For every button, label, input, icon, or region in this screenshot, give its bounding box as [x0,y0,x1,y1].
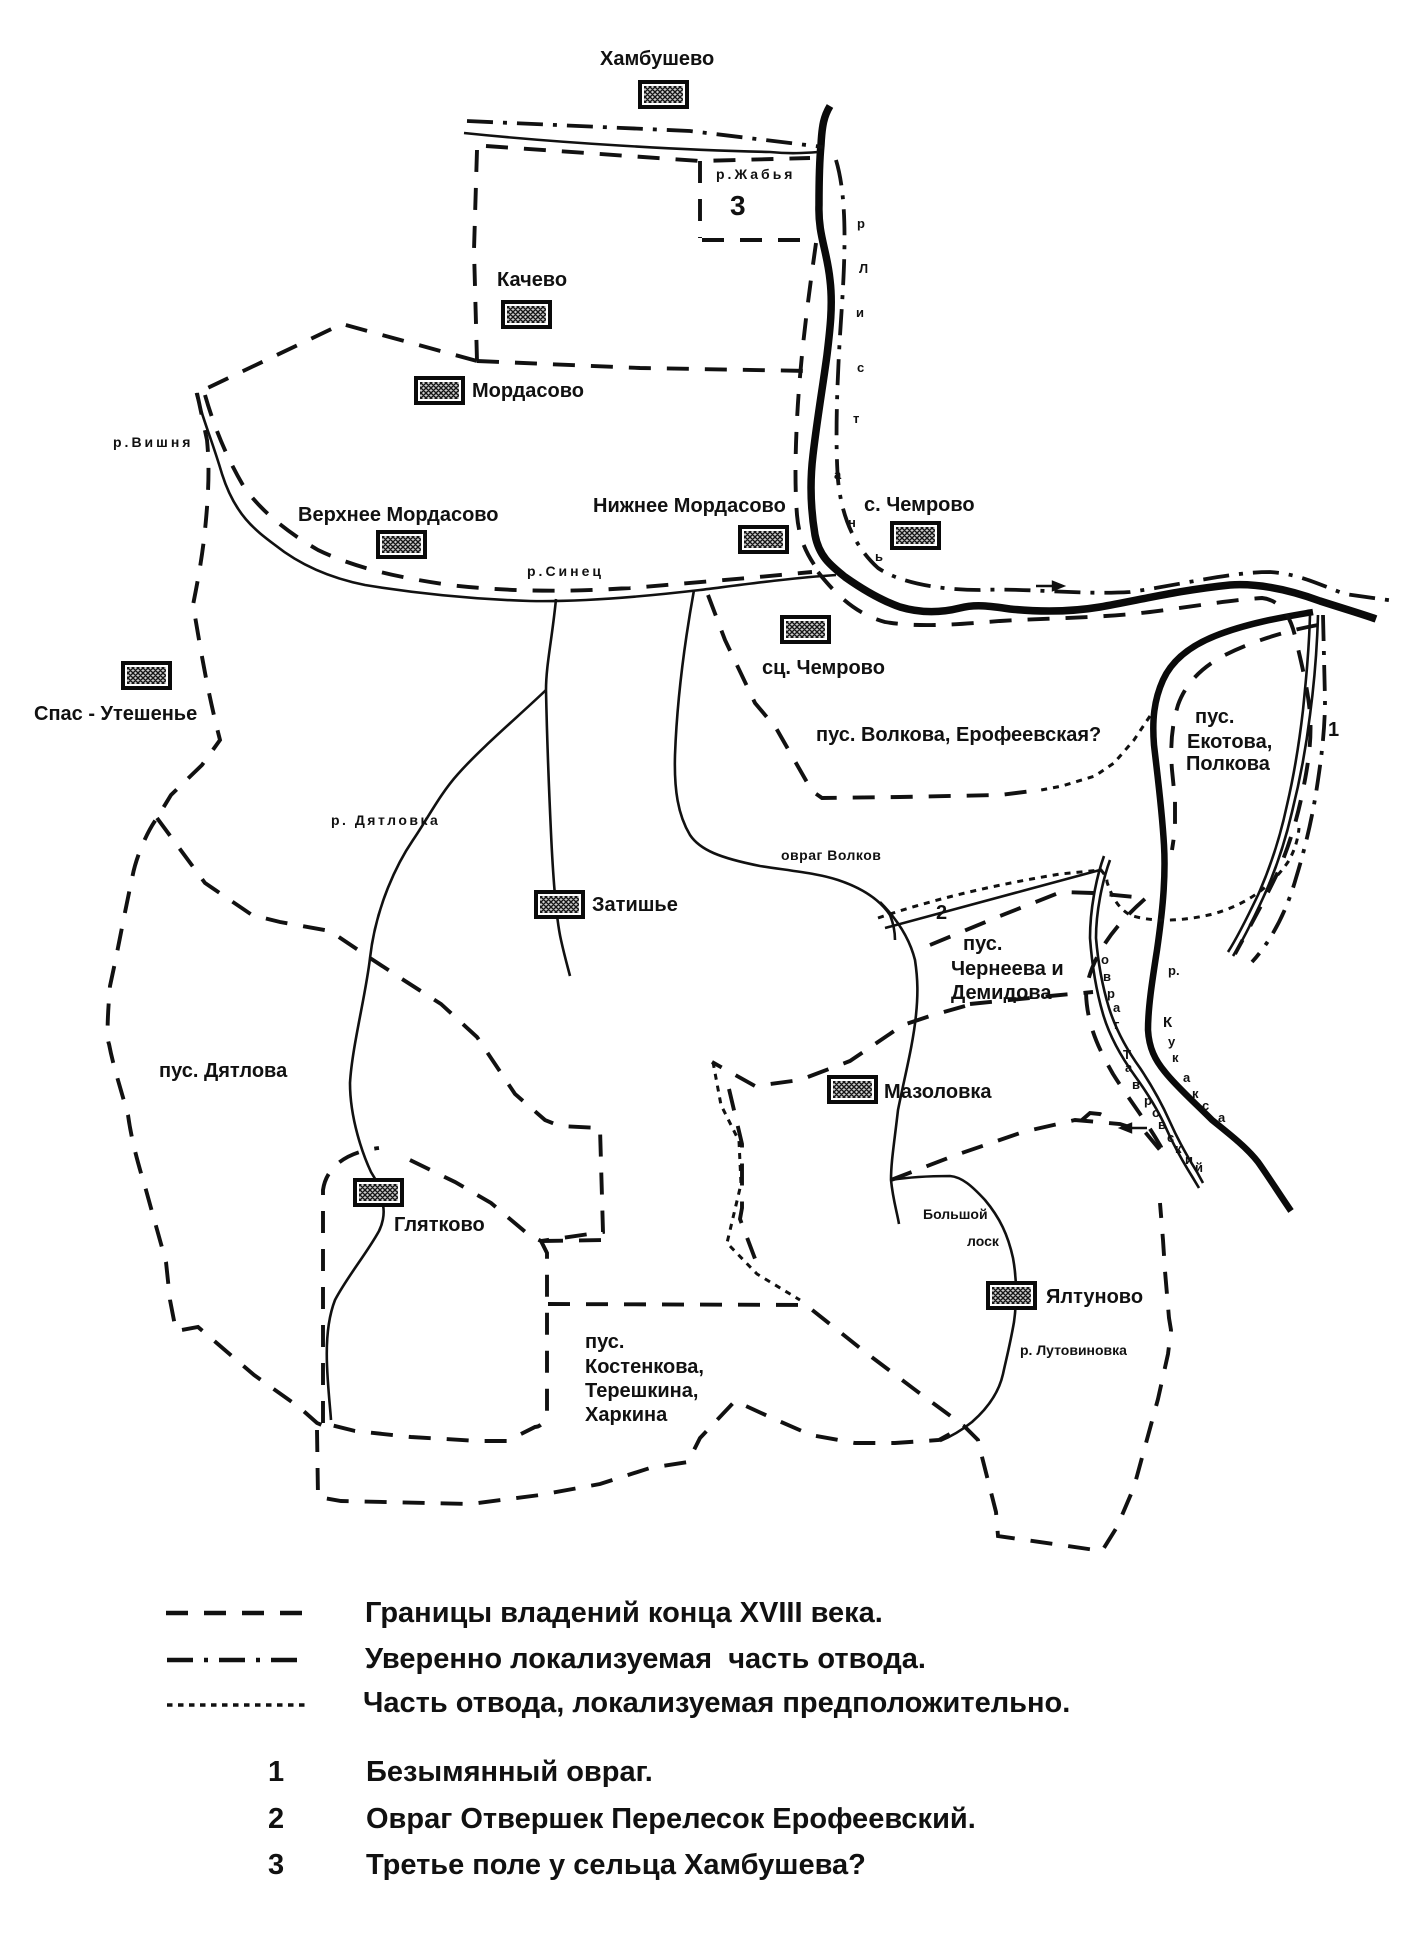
svg-text:пус.: пус. [585,1331,624,1353]
svg-text:в: в [1158,1117,1166,1132]
svg-text:р: р [1144,1093,1152,1108]
svg-text:Мазоловка: Мазоловка [884,1081,992,1103]
svg-text:Часть отвода, локализуемая пре: Часть отвода, локализуемая предположител… [363,1687,1070,1719]
svg-text:Хамбушево: Хамбушево [600,48,714,70]
svg-text:а: а [1125,1060,1133,1075]
svg-text:в: в [1132,1077,1140,1092]
svg-text:Терешкина,: Терешкина, [585,1380,698,1402]
svg-text:Полкова: Полкова [1186,753,1271,775]
svg-text:р.Вишня: р.Вишня [113,434,193,450]
svg-text:сц. Чемрово: сц. Чемрово [762,657,885,679]
svg-text:с: с [1202,1098,1209,1113]
svg-text:Спас - Утешенье: Спас - Утешенье [34,703,197,725]
svg-text:в: в [1103,969,1111,984]
svg-text:Уверенно локализуемая часть о: Уверенно локализуемая часть отвода. [365,1643,926,1675]
svg-text:Екотова,: Екотова, [1187,731,1272,753]
svg-text:Овраг Отвершек Перелесок Ерофе: Овраг Отвершек Перелесок Ерофеевский. [366,1803,976,1835]
svg-text:3: 3 [268,1849,284,1881]
svg-text:3: 3 [730,190,746,221]
svg-text:Костенкова,: Костенкова, [585,1356,704,1378]
svg-text:г: г [1114,1017,1120,1032]
svg-text:Демидова: Демидова [951,982,1052,1004]
svg-text:с: с [857,360,864,375]
svg-text:р.: р. [1168,963,1180,978]
svg-text:Верхнее Мордасово: Верхнее Мордасово [298,504,499,526]
svg-text:к: к [1175,1141,1182,1156]
svg-text:2: 2 [936,902,947,924]
svg-text:2: 2 [268,1803,284,1835]
svg-text:Глятково: Глятково [394,1214,485,1236]
svg-text:овраг Волков: овраг Волков [781,847,881,863]
svg-text:Харкина: Харкина [585,1404,668,1426]
svg-text:1: 1 [1328,719,1339,741]
svg-text:Чернеева и: Чернеева и [951,958,1064,980]
svg-text:й: й [1195,1160,1203,1175]
svg-text:р. Дятловка: р. Дятловка [331,812,440,828]
svg-text:Третье поле у сельца Хамбушева: Третье поле у сельца Хамбушева? [366,1849,866,1881]
svg-text:р.Синец: р.Синец [527,563,604,579]
svg-text:а: а [1218,1110,1226,1125]
svg-text:и: и [1185,1152,1193,1167]
svg-text:Ялтуново: Ялтуново [1046,1286,1143,1308]
svg-text:и: и [856,305,864,320]
svg-text:ь: ь [875,549,883,564]
svg-text:с. Чемрово: с. Чемрово [864,494,975,516]
svg-text:Мордасово: Мордасово [472,380,584,402]
svg-text:а: а [1183,1070,1191,1085]
svg-text:т: т [853,411,859,426]
svg-text:К: К [1163,1014,1173,1031]
svg-text:к: к [1172,1050,1179,1065]
svg-text:Качево: Качево [497,269,567,291]
svg-text:а: а [834,467,842,482]
svg-text:пус.: пус. [1195,706,1234,728]
svg-text:пус. Волкова, Ерофеевская?: пус. Волкова, Ерофеевская? [816,724,1101,746]
svg-text:Большой: Большой [923,1206,988,1222]
svg-text:у: у [1168,1034,1176,1049]
svg-text:о: о [1101,952,1109,967]
svg-text:р: р [857,216,865,231]
svg-text:к: к [1192,1086,1199,1101]
svg-text:с: с [1167,1130,1174,1145]
svg-text:а: а [1113,1000,1121,1015]
svg-text:лоск: лоск [967,1233,1000,1249]
svg-text:Нижнее Мордасово: Нижнее Мордасово [593,495,786,517]
svg-text:пус. Дятлова: пус. Дятлова [159,1060,288,1082]
svg-text:р: р [1107,986,1115,1001]
svg-text:н: н [848,515,856,530]
svg-text:р. Лутовиновка: р. Лутовиновка [1020,1342,1127,1358]
svg-text:Затишье: Затишье [592,894,678,916]
svg-text:1: 1 [268,1756,284,1788]
svg-text:Безымянный овраг.: Безымянный овраг. [366,1756,653,1788]
svg-text:Л: Л [859,261,868,276]
svg-text:пус.: пус. [963,933,1002,955]
svg-text:Границы владений конца XVIII в: Границы владений конца XVIII века. [365,1597,883,1629]
svg-text:р.Жабья: р.Жабья [716,166,795,182]
